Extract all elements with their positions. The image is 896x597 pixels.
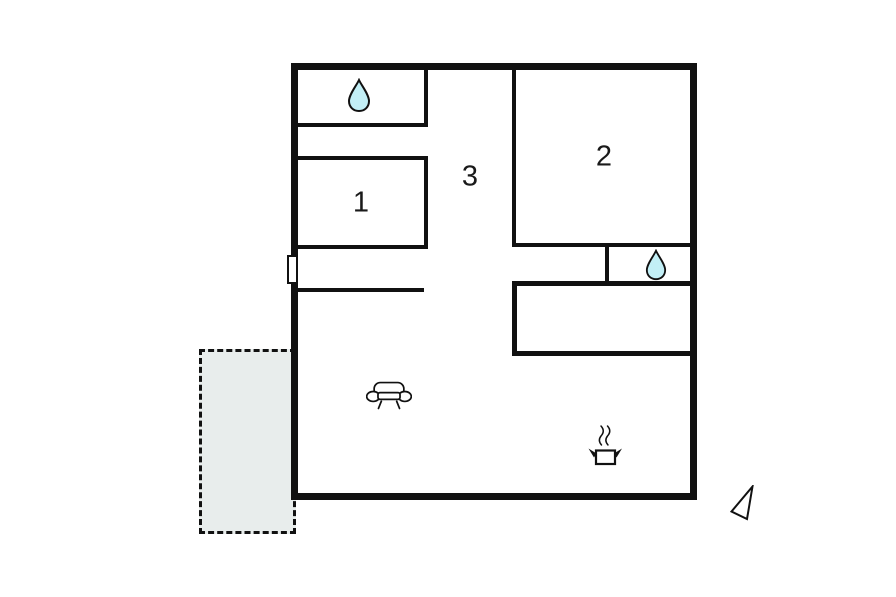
wall-mid-horizontal — [512, 281, 695, 286]
room-1-label: 1 — [353, 189, 369, 218]
wall-outer-top — [291, 63, 697, 70]
wall-room1-right — [424, 156, 428, 249]
wall-bathroom1-bottom — [295, 123, 428, 127]
terrace-area — [199, 349, 296, 534]
wall-bathroom2-left — [605, 247, 609, 285]
cooking-pot-icon — [586, 424, 624, 468]
water-drop-icon — [347, 78, 371, 113]
floor-plan: 1 2 3 — [0, 0, 896, 597]
wall-room2-bottom — [512, 243, 695, 247]
room-2-label: 2 — [596, 143, 612, 172]
water-drop-icon — [645, 249, 667, 281]
wall-closet-bottom — [512, 351, 695, 356]
wall-room1-top — [295, 156, 428, 160]
hallway-label: 3 — [462, 163, 478, 192]
wall-outer-bottom — [291, 493, 697, 500]
wall-closet-left — [512, 281, 517, 356]
north-arrow-icon — [729, 485, 756, 522]
sofa-icon — [366, 381, 412, 410]
wall-room2-left — [512, 67, 516, 247]
door-marker — [287, 255, 298, 284]
wall-bathroom1-right — [424, 67, 428, 127]
wall-corridor-stub — [295, 288, 424, 292]
wall-room1-bottom — [295, 245, 428, 249]
